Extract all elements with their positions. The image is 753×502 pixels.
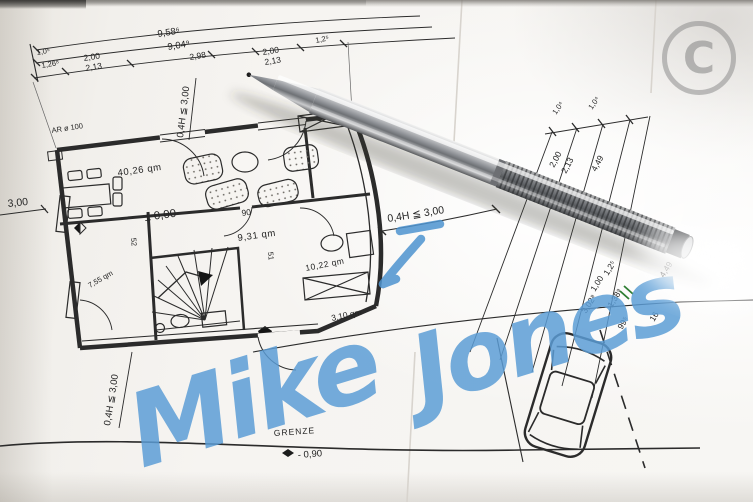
floor-level-value: ± 0,00 bbox=[144, 208, 177, 224]
paper-top-edge-dark bbox=[0, 0, 86, 9]
dim-left-height: 3,00 bbox=[7, 196, 29, 210]
dim-seg-2: 1,26⁸ bbox=[41, 58, 60, 70]
boundary-line-faint bbox=[0, 442, 700, 451]
site-level-value: - 0,90 bbox=[297, 448, 322, 461]
dining-table-set bbox=[61, 168, 122, 218]
room-label-hall: 9,31 qm bbox=[237, 228, 277, 244]
dim-seg-1: 1,0⁵ bbox=[36, 46, 51, 57]
copyright-watermark: C bbox=[662, 21, 736, 95]
round-rug bbox=[232, 152, 258, 172]
vent-label: AR ø 100 bbox=[51, 121, 84, 135]
dim-rc-4: 2,13 bbox=[559, 155, 576, 175]
dim-seg-4: 2,13 bbox=[85, 60, 103, 73]
fold-line-top-center bbox=[454, 0, 462, 142]
paper-top-edge-mid bbox=[86, 0, 366, 6]
wall-width-52: 52 bbox=[129, 237, 139, 246]
pen-tip-point bbox=[246, 72, 252, 78]
copyright-letter: C bbox=[683, 33, 715, 84]
blueprint-photo: GRENZE - 0,90 bbox=[0, 0, 753, 502]
stair-direction-arrow bbox=[198, 271, 213, 286]
fold-line-top-right bbox=[651, 0, 656, 93]
dim-rc-5: 4,49 bbox=[589, 153, 606, 173]
wall-width-51: 51 bbox=[266, 251, 276, 260]
blueprint-drawing: GRENZE - 0,90 bbox=[0, 0, 753, 502]
left-dimension: 3,00 bbox=[0, 196, 48, 215]
dim-total-2: 9,04⁹ bbox=[167, 39, 191, 53]
stair-enclosure bbox=[150, 248, 244, 330]
pen-highlight-bottom bbox=[311, 105, 666, 248]
room-label-living: 40,26 qm bbox=[117, 162, 163, 179]
dim-rc-2: 1,0⁴ bbox=[586, 95, 601, 111]
dim-seg-5: 2,98 bbox=[189, 49, 207, 62]
wardrobe-x bbox=[303, 272, 370, 300]
wall-interior-left bbox=[148, 212, 156, 340]
dim-seg-7: 2,13 bbox=[264, 54, 282, 67]
pen-tip-cone bbox=[247, 70, 277, 90]
handwritten-signature: Mike Jones bbox=[115, 224, 696, 492]
wall-width-90: 90 bbox=[241, 207, 252, 218]
dim-total-1: 9,58⁶ bbox=[157, 26, 181, 40]
signature-arrow bbox=[383, 224, 440, 284]
room-label-bath: 7,55 qm bbox=[87, 268, 115, 289]
pen-highlight-top bbox=[277, 75, 674, 235]
dim-seg-8: 1,2⁵ bbox=[315, 33, 330, 45]
side-table bbox=[320, 234, 344, 253]
room-label-right: 10,22 qm bbox=[304, 256, 345, 273]
dim-rc-1: 1,0⁴ bbox=[550, 100, 565, 116]
winder-stairs bbox=[152, 247, 240, 330]
